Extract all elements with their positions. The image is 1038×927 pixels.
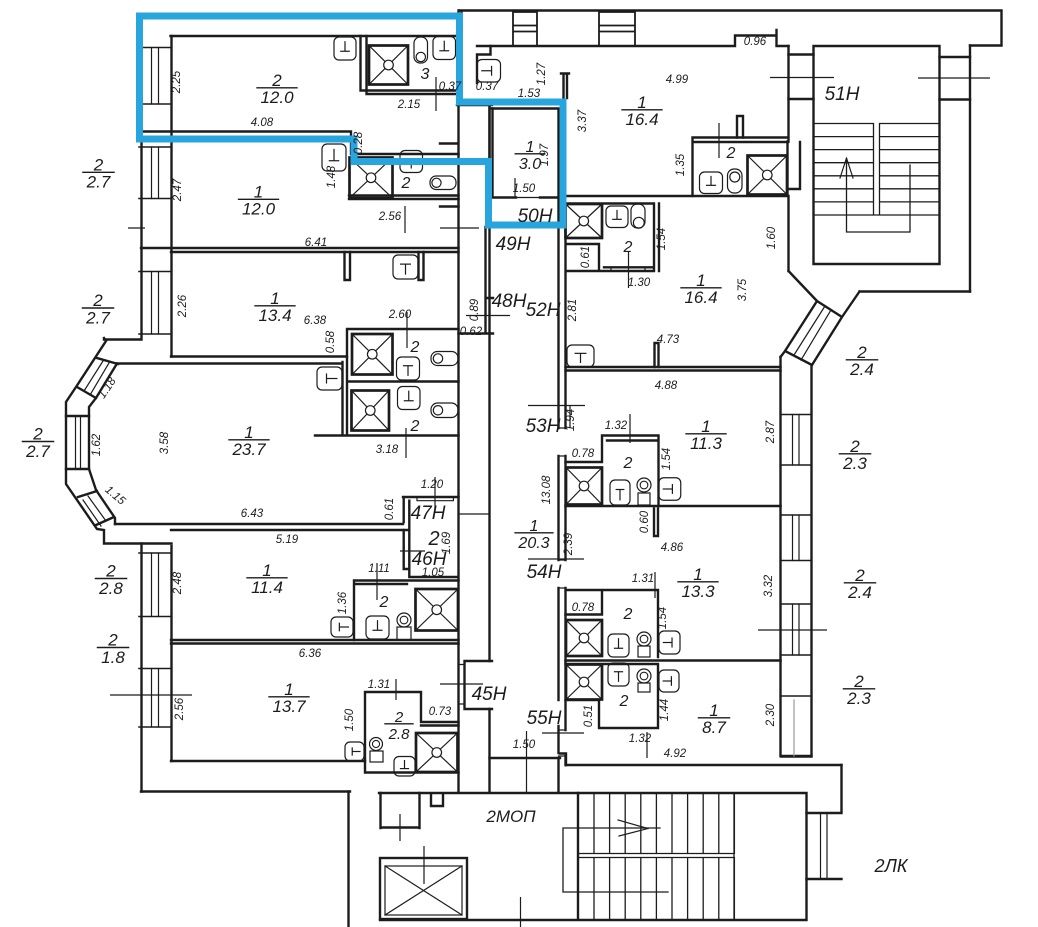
svg-text:2.26: 2.26: [177, 294, 189, 318]
svg-text:0.28: 0.28: [353, 131, 365, 154]
svg-text:0.73: 0.73: [429, 706, 452, 718]
svg-text:2.8: 2.8: [98, 579, 123, 598]
svg-text:0.60: 0.60: [639, 510, 651, 533]
svg-text:2.15: 2.15: [397, 99, 421, 111]
svg-text:1.11: 1.11: [368, 563, 390, 575]
svg-text:12.0: 12.0: [242, 200, 276, 219]
svg-text:13.7: 13.7: [272, 697, 306, 716]
svg-text:1.27: 1.27: [536, 62, 548, 85]
svg-text:0.62: 0.62: [460, 326, 483, 338]
svg-text:0.37: 0.37: [476, 81, 499, 93]
svg-text:6.43: 6.43: [241, 508, 264, 520]
svg-text:45Н: 45Н: [472, 684, 507, 705]
svg-text:2.30: 2.30: [765, 703, 777, 727]
svg-text:52Н: 52Н: [526, 300, 561, 321]
svg-text:53Н: 53Н: [526, 416, 561, 437]
svg-text:3.32: 3.32: [763, 574, 775, 597]
svg-text:2МОП: 2МОП: [485, 807, 536, 826]
svg-text:1.31: 1.31: [368, 679, 390, 691]
svg-text:1.54: 1.54: [657, 607, 669, 629]
svg-text:5.19: 5.19: [276, 534, 299, 546]
svg-text:20.3: 20.3: [517, 535, 549, 552]
svg-text:1.48: 1.48: [326, 165, 338, 188]
svg-text:2.25: 2.25: [171, 70, 183, 94]
svg-text:2.47: 2.47: [172, 178, 184, 202]
svg-text:54Н: 54Н: [527, 562, 562, 583]
svg-text:8.7: 8.7: [702, 718, 726, 737]
svg-text:2: 2: [623, 455, 633, 472]
svg-text:2.3: 2.3: [846, 689, 871, 708]
svg-text:2.4: 2.4: [849, 360, 874, 379]
svg-text:2: 2: [427, 528, 439, 550]
svg-text:1.50: 1.50: [344, 708, 356, 731]
svg-text:1.44: 1.44: [659, 699, 671, 721]
svg-text:4.99: 4.99: [666, 74, 689, 86]
svg-text:13.08: 13.08: [541, 475, 553, 504]
svg-text:6.41: 6.41: [305, 237, 327, 249]
svg-text:1.32: 1.32: [629, 733, 652, 745]
svg-text:47Н: 47Н: [411, 503, 446, 524]
svg-text:1.53: 1.53: [518, 88, 541, 100]
svg-text:2: 2: [726, 145, 736, 162]
svg-text:0.96: 0.96: [744, 36, 767, 48]
svg-text:2: 2: [623, 239, 633, 256]
svg-text:3.75: 3.75: [737, 278, 749, 301]
svg-text:2: 2: [379, 594, 389, 611]
svg-text:3.37: 3.37: [577, 109, 589, 132]
svg-text:3.58: 3.58: [159, 431, 171, 454]
svg-text:4.92: 4.92: [664, 748, 687, 760]
svg-text:6.38: 6.38: [304, 315, 327, 327]
svg-text:16.4: 16.4: [684, 288, 717, 307]
svg-text:2.7: 2.7: [86, 173, 111, 192]
svg-text:23.7: 23.7: [231, 440, 266, 459]
svg-text:1.54: 1.54: [661, 448, 673, 470]
svg-text:2: 2: [619, 693, 629, 710]
svg-text:1.35: 1.35: [675, 153, 687, 176]
svg-text:1.20: 1.20: [421, 479, 444, 491]
svg-text:12.0: 12.0: [260, 88, 294, 107]
svg-text:2: 2: [623, 606, 633, 623]
svg-text:0.89: 0.89: [469, 298, 481, 321]
svg-text:55Н: 55Н: [527, 708, 562, 729]
svg-text:2.48: 2.48: [172, 571, 184, 595]
svg-text:2.8: 2.8: [388, 726, 411, 743]
svg-text:1.32: 1.32: [605, 420, 628, 432]
svg-text:2: 2: [410, 418, 420, 435]
svg-text:16.4: 16.4: [625, 110, 658, 129]
svg-text:2ЛК: 2ЛК: [874, 856, 909, 876]
svg-text:0.78: 0.78: [572, 602, 595, 614]
svg-text:0.58: 0.58: [325, 330, 337, 353]
svg-text:1.94: 1.94: [565, 409, 577, 431]
svg-text:49Н: 49Н: [496, 234, 531, 255]
svg-text:2.87: 2.87: [765, 420, 777, 444]
svg-text:0.61: 0.61: [384, 498, 396, 520]
svg-text:3: 3: [421, 66, 430, 83]
svg-text:50Н: 50Н: [518, 206, 553, 227]
svg-text:4.88: 4.88: [655, 380, 678, 392]
svg-text:2.56: 2.56: [378, 211, 402, 223]
svg-text:2.4: 2.4: [847, 583, 872, 602]
svg-text:2: 2: [410, 339, 420, 356]
svg-text:2.56: 2.56: [174, 697, 186, 721]
svg-text:1.36: 1.36: [337, 591, 349, 614]
svg-text:4.73: 4.73: [657, 334, 680, 346]
svg-text:1.50: 1.50: [513, 739, 536, 751]
svg-text:0.61: 0.61: [580, 246, 592, 268]
svg-text:4.86: 4.86: [661, 542, 684, 554]
svg-text:13.3: 13.3: [681, 582, 715, 601]
svg-text:2.39: 2.39: [563, 532, 575, 556]
svg-text:4.08: 4.08: [251, 117, 274, 129]
svg-text:2.7: 2.7: [25, 442, 50, 461]
svg-text:3.0: 3.0: [519, 156, 541, 173]
svg-text:48Н: 48Н: [492, 291, 527, 312]
svg-text:2.60: 2.60: [388, 309, 412, 321]
svg-text:1.97: 1.97: [539, 143, 551, 166]
svg-text:3.18: 3.18: [376, 444, 399, 456]
svg-text:2: 2: [401, 175, 411, 192]
svg-text:1.62: 1.62: [91, 433, 103, 456]
svg-text:1.54: 1.54: [656, 228, 668, 250]
svg-text:2.7: 2.7: [85, 308, 110, 327]
svg-text:1.30: 1.30: [628, 277, 651, 289]
svg-text:2.3: 2.3: [842, 454, 867, 473]
svg-text:51Н: 51Н: [825, 84, 860, 105]
svg-text:11.3: 11.3: [690, 434, 722, 453]
svg-text:1.69: 1.69: [441, 531, 453, 554]
svg-text:13.4: 13.4: [258, 306, 291, 325]
svg-text:0.37: 0.37: [439, 81, 462, 93]
svg-text:1.05: 1.05: [422, 567, 445, 579]
svg-text:1.50: 1.50: [513, 183, 536, 195]
svg-text:1.8: 1.8: [101, 648, 125, 667]
svg-text:11.4: 11.4: [251, 578, 283, 597]
svg-text:6.36: 6.36: [299, 648, 322, 660]
svg-text:1.60: 1.60: [766, 226, 778, 249]
svg-text:0.51: 0.51: [583, 705, 595, 727]
svg-text:2.81: 2.81: [567, 299, 579, 322]
svg-text:1.31: 1.31: [632, 573, 654, 585]
svg-text:0.78: 0.78: [572, 448, 595, 460]
